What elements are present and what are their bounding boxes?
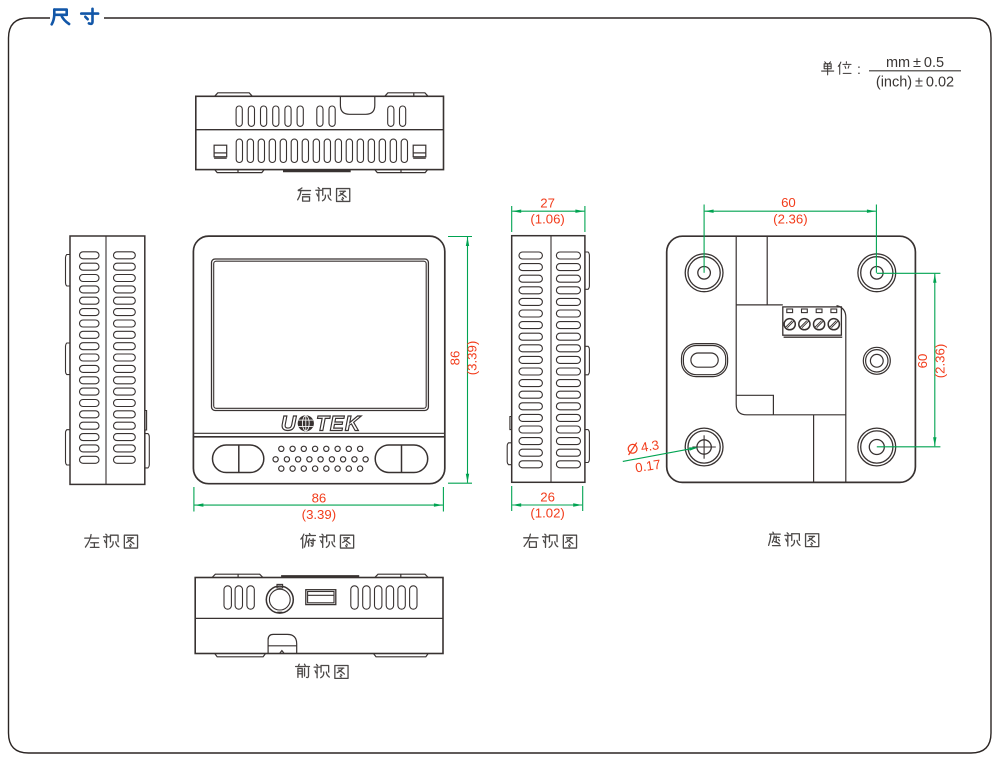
svg-text::: : [857,61,861,77]
svg-text:60: 60 [781,195,796,210]
svg-text:(1.02): (1.02) [530,506,564,521]
svg-text:60: 60 [915,354,930,369]
svg-text:(inch) ± 0.02: (inch) ± 0.02 [876,75,954,91]
svg-text:U: U [281,413,297,436]
svg-text:(3.39): (3.39) [302,507,336,522]
svg-text:0.17: 0.17 [634,457,662,476]
svg-text:(2.36): (2.36) [933,344,948,378]
svg-text:(2.36): (2.36) [773,211,807,226]
svg-text:86: 86 [448,351,463,366]
svg-text:26: 26 [540,490,555,505]
svg-text:(3.39): (3.39) [465,341,480,375]
svg-text:4.3: 4.3 [640,437,660,455]
svg-text:27: 27 [540,196,555,211]
svg-text:TEK: TEK [316,413,362,436]
svg-text:mm ± 0.5: mm ± 0.5 [886,55,944,71]
svg-text:86: 86 [312,490,327,505]
svg-text:(1.06): (1.06) [530,212,564,227]
